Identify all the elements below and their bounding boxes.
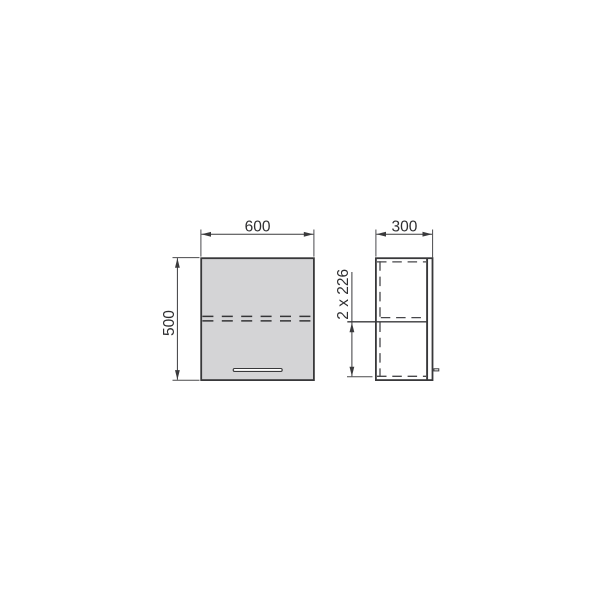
svg-text:600: 600 — [245, 219, 271, 236]
svg-text:2 x 226: 2 x 226 — [335, 269, 352, 320]
svg-text:300: 300 — [391, 219, 417, 236]
svg-text:500: 500 — [161, 310, 178, 336]
